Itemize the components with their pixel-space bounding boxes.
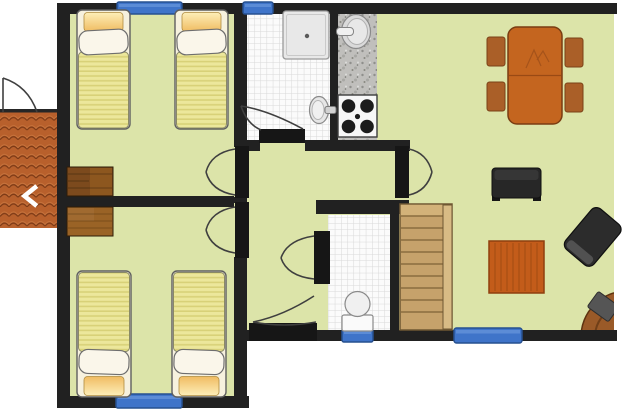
- wall-segment: [330, 3, 338, 151]
- tv-bench-highlight: [495, 170, 539, 180]
- tv-bench: [492, 168, 541, 201]
- bed-blanket: [177, 52, 227, 128]
- door-leaf: [259, 129, 305, 143]
- bed-cushion: [84, 13, 123, 32]
- stove-burner: [342, 120, 356, 134]
- bed: [175, 10, 228, 129]
- stove-burner: [342, 99, 356, 113]
- staircase: [400, 204, 452, 330]
- bed-blanket: [79, 52, 129, 128]
- toilet-tank: [342, 315, 373, 331]
- shower-drain: [305, 34, 309, 38]
- shower-tray: [283, 11, 329, 59]
- door-leaf: [395, 146, 409, 198]
- bed-pillow: [174, 349, 225, 375]
- kitchen-faucet: [337, 28, 354, 36]
- door-leaf: [235, 146, 249, 198]
- porch-roof-trim: [0, 109, 57, 113]
- toilet-bowl: [345, 292, 370, 317]
- stove-knob: [355, 114, 360, 119]
- bed-cushion: [182, 13, 221, 32]
- bed: [77, 10, 130, 129]
- door-leaf: [314, 231, 330, 284]
- staircase-rail: [443, 205, 452, 329]
- porch-roof-canopy: [0, 111, 57, 228]
- coffee-table: [489, 241, 544, 293]
- stove-burner: [360, 99, 374, 113]
- toilet: [342, 292, 373, 332]
- staircase-landing: [401, 205, 443, 216]
- stove: [338, 95, 377, 137]
- washbasin-inner: [312, 101, 324, 120]
- wall-segment: [390, 204, 399, 334]
- coffee-table-top: [489, 241, 544, 293]
- floor-plan-photo: [0, 0, 630, 414]
- bed: [77, 271, 131, 397]
- bed-blanket: [79, 273, 130, 352]
- wardrobe: [67, 207, 113, 236]
- bed: [172, 271, 226, 397]
- window-highlight: [245, 4, 271, 7]
- wall-segment: [305, 140, 410, 151]
- bed-cushion: [84, 377, 124, 396]
- wall-segment: [234, 3, 247, 147]
- bed-blanket: [174, 273, 225, 352]
- dining-chair: [565, 83, 583, 112]
- wall-segment: [57, 196, 234, 207]
- bed-pillow: [78, 29, 128, 56]
- wall-segment: [234, 257, 247, 408]
- dining-chair: [487, 37, 505, 66]
- stove-burner: [360, 120, 374, 134]
- dining-chair: [487, 82, 505, 111]
- dining-chair: [565, 38, 583, 67]
- window: [243, 2, 273, 14]
- bed-pillow: [79, 349, 130, 375]
- wardrobe-panel: [90, 168, 112, 195]
- washbasin-faucet: [325, 107, 336, 114]
- window-highlight: [456, 330, 520, 334]
- window-highlight: [119, 4, 180, 7]
- bed-pillow: [176, 29, 226, 56]
- wardrobe: [67, 167, 113, 196]
- door-leaf: [235, 202, 249, 258]
- bed-cushion: [179, 377, 219, 396]
